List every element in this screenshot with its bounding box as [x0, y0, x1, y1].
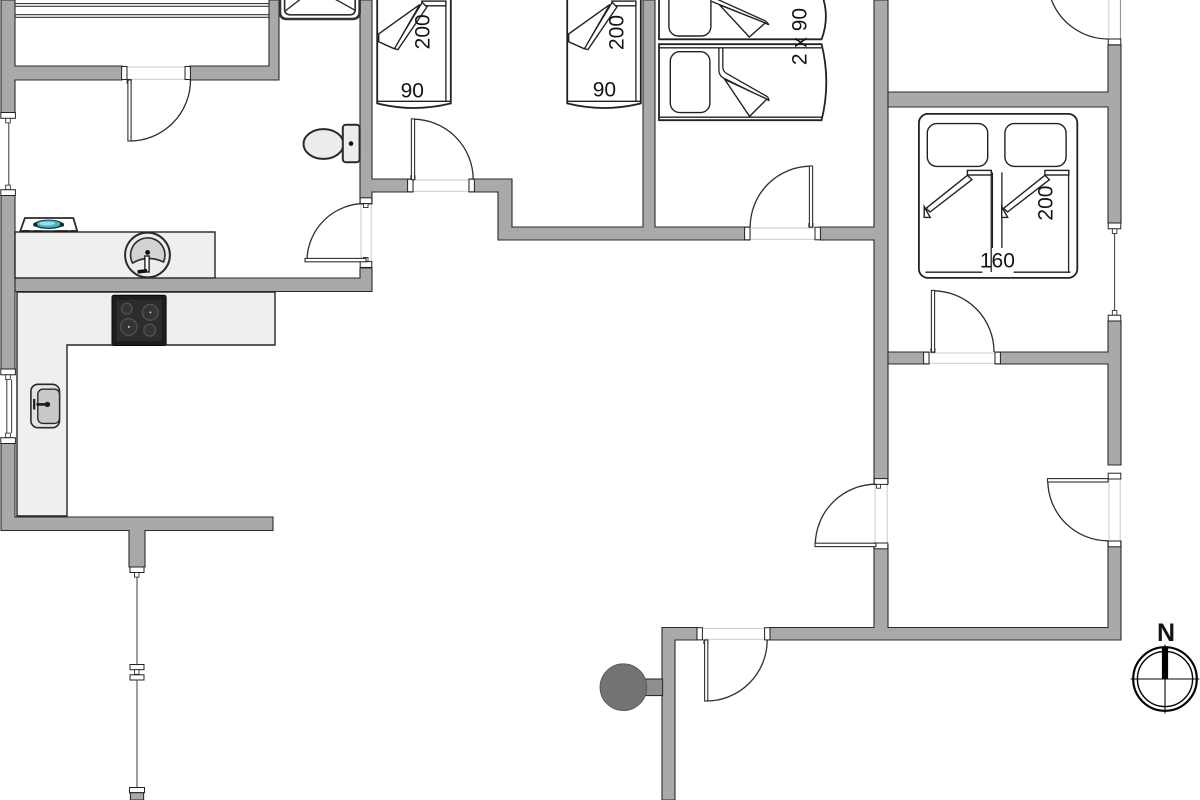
svg-text:2 x 90: 2 x 90 [789, 8, 812, 65]
svg-text:90: 90 [593, 78, 616, 101]
svg-text:200: 200 [1034, 186, 1057, 221]
svg-text:200: 200 [411, 14, 434, 49]
svg-text:160: 160 [980, 249, 1015, 272]
svg-text:200: 200 [606, 15, 629, 50]
svg-text:N: N [1157, 619, 1175, 647]
svg-text:90: 90 [401, 79, 424, 102]
